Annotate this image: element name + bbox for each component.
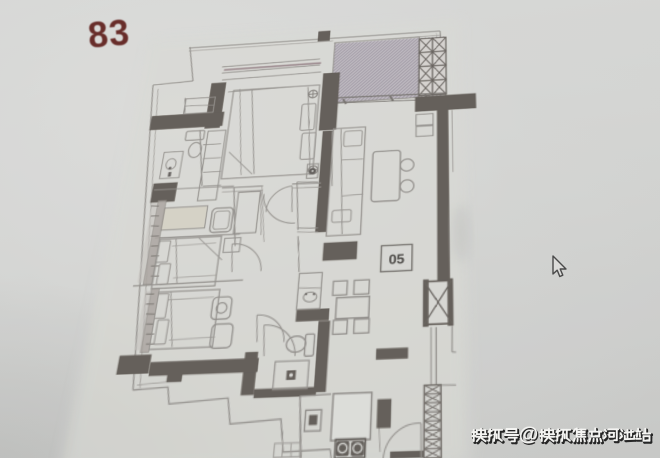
svg-text:@: @: [519, 424, 539, 446]
